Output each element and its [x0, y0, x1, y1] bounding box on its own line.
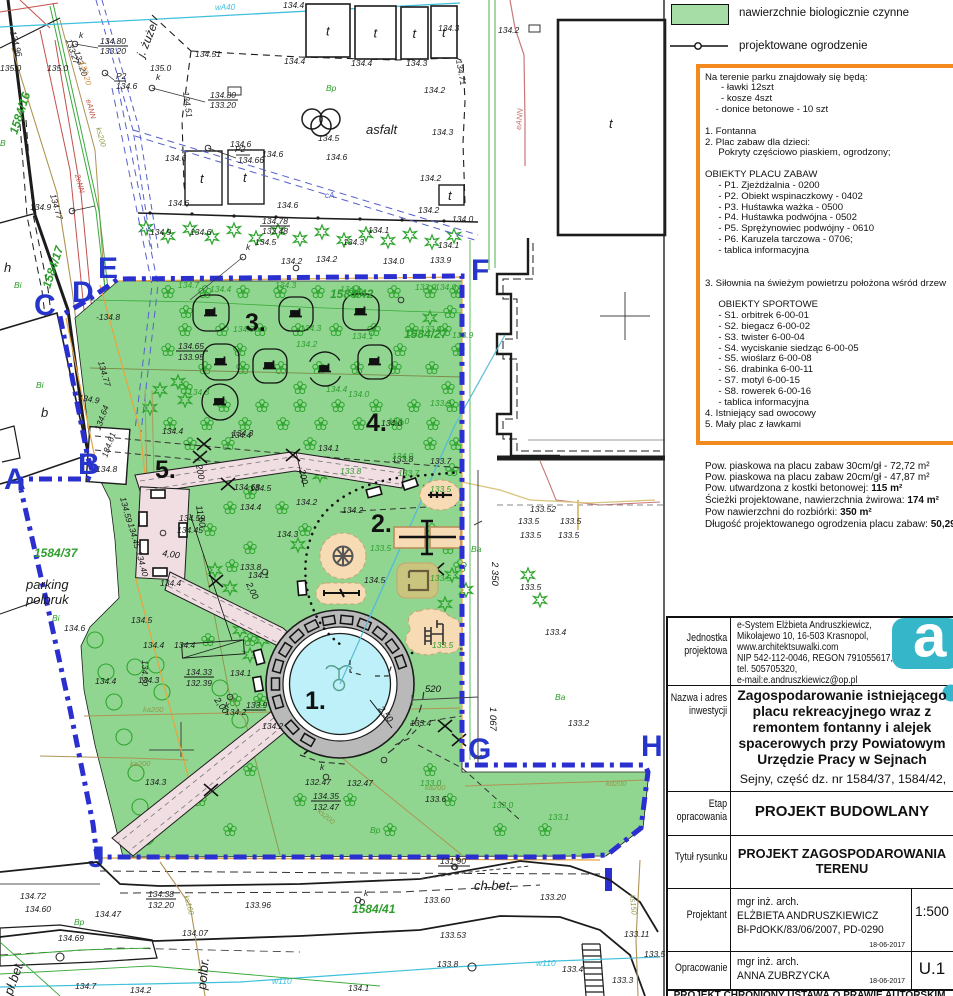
svg-text:134.1: 134.1: [348, 983, 370, 993]
svg-text:133.0: 133.0: [492, 800, 514, 810]
svg-text:5.: 5.: [155, 456, 176, 484]
svg-text:132.47: 132.47: [305, 777, 331, 787]
svg-text:134.2: 134.2: [316, 254, 338, 264]
svg-text:1 067: 1 067: [487, 707, 498, 731]
svg-text:134.38: 134.38: [148, 889, 174, 899]
svg-text:134.6: 134.6: [230, 139, 252, 149]
svg-text:134.3: 134.3: [432, 127, 454, 137]
svg-text:132.20: 132.20: [148, 900, 174, 910]
svg-text:133.9: 133.9: [430, 398, 452, 408]
svg-text:134.0: 134.0: [435, 282, 457, 292]
svg-text:ch.bet.: ch.bet.: [474, 878, 513, 893]
svg-text:133.0: 133.0: [420, 778, 442, 788]
svg-text:132.39: 132.39: [186, 678, 212, 688]
svg-text:133.9: 133.9: [430, 255, 452, 265]
svg-text:1584/27: 1584/27: [404, 327, 449, 341]
svg-text:E: E: [98, 252, 118, 285]
svg-text:ks150: ks150: [628, 894, 639, 916]
svg-text:133.96: 133.96: [245, 900, 271, 910]
svg-text:134.2: 134.2: [498, 25, 520, 35]
svg-text:132.47: 132.47: [347, 778, 373, 788]
svg-text:Ba: Ba: [555, 692, 566, 702]
svg-text:134.6: 134.6: [277, 200, 299, 210]
svg-text:134.33: 134.33: [186, 667, 212, 677]
svg-text:133.48: 133.48: [262, 226, 288, 236]
svg-text:1584/42: 1584/42: [330, 287, 374, 301]
svg-text:133.5: 133.5: [370, 543, 392, 553]
svg-text:134.4: 134.4: [240, 502, 262, 512]
svg-text:133.9: 133.9: [415, 282, 437, 292]
svg-text:133.5: 133.5: [430, 573, 452, 583]
svg-text:Bp: Bp: [326, 83, 337, 93]
svg-text:134.6: 134.6: [64, 623, 86, 633]
svg-text:cA: cA: [325, 191, 334, 200]
svg-text:J: J: [88, 841, 105, 874]
svg-text:polbr.: polbr.: [194, 957, 212, 991]
svg-text:133.5: 133.5: [558, 530, 580, 540]
svg-text:134.3: 134.3: [145, 777, 167, 787]
svg-text:134.3: 134.3: [277, 529, 299, 539]
svg-text:134.2: 134.2: [418, 205, 440, 215]
svg-text:134.7: 134.7: [75, 981, 97, 991]
svg-text:134.2: 134.2: [424, 85, 446, 95]
svg-text:133.9: 133.9: [452, 330, 474, 340]
svg-text:134.69: 134.69: [58, 933, 84, 943]
svg-text:134.3: 134.3: [275, 280, 297, 290]
svg-text:134.59: 134.59: [179, 513, 205, 523]
svg-text:B: B: [0, 138, 6, 148]
svg-text:134.2: 134.2: [262, 721, 284, 731]
svg-text:133.4: 133.4: [545, 627, 567, 637]
svg-text:133.5: 133.5: [432, 640, 454, 650]
svg-text:134.80: 134.80: [100, 36, 126, 46]
svg-text:134.4: 134.4: [95, 676, 117, 686]
svg-text:133.11: 133.11: [624, 929, 650, 939]
svg-text:134.72: 134.72: [20, 891, 46, 901]
svg-text:2.: 2.: [371, 510, 392, 538]
svg-text:134.78: 134.78: [262, 216, 288, 226]
svg-text:133.60: 133.60: [424, 895, 450, 905]
svg-text:A: A: [4, 463, 26, 496]
svg-text:134.6: 134.6: [165, 153, 187, 163]
svg-text:134.4: 134.4: [230, 430, 252, 440]
svg-text:520: 520: [425, 684, 442, 695]
svg-text:ka200: ka200: [130, 759, 151, 768]
svg-text:133.5: 133.5: [520, 530, 542, 540]
svg-text:134.6: 134.6: [190, 227, 212, 237]
svg-text:134.5: 134.5: [364, 575, 386, 585]
svg-text:134.1: 134.1: [368, 225, 390, 235]
svg-text:134.2: 134.2: [296, 339, 318, 349]
svg-text:C: C: [34, 289, 56, 322]
svg-text:133.95: 133.95: [178, 352, 204, 362]
svg-text:134.4: 134.4: [210, 284, 232, 294]
svg-text:ka200: ka200: [143, 705, 164, 714]
svg-text:134.9: 134.9: [150, 227, 172, 237]
svg-text:135.0: 135.0: [0, 63, 22, 73]
svg-text:134.4: 134.4: [326, 384, 348, 394]
svg-text:Bi: Bi: [14, 280, 23, 290]
svg-text:134.2: 134.2: [296, 497, 318, 507]
svg-text:133.5: 133.5: [520, 582, 542, 592]
svg-text:133.3: 133.3: [612, 975, 634, 985]
svg-text:134.0: 134.0: [348, 389, 370, 399]
svg-text:wA40: wA40: [215, 3, 236, 12]
svg-text:134.65: 134.65: [178, 341, 204, 351]
svg-text:133.8: 133.8: [340, 466, 362, 476]
svg-text:133.52: 133.52: [530, 504, 556, 514]
svg-text:134.3: 134.3: [343, 237, 365, 247]
svg-text:F: F: [471, 254, 489, 287]
svg-text:134.35: 134.35: [313, 791, 339, 801]
svg-text:134.3: 134.3: [233, 324, 255, 334]
svg-text:P2: P2: [116, 71, 127, 81]
svg-text:polbruk: polbruk: [25, 592, 70, 607]
svg-text:134.3: 134.3: [438, 23, 460, 33]
svg-text:134.6: 134.6: [116, 81, 138, 91]
svg-text:132.47: 132.47: [313, 802, 339, 812]
svg-text:134.0: 134.0: [388, 416, 410, 426]
svg-text:133.1: 133.1: [548, 812, 570, 822]
svg-text:kd200: kd200: [606, 779, 627, 788]
svg-text:134.4: 134.4: [174, 640, 196, 650]
svg-text:134.8: 134.8: [96, 464, 118, 474]
svg-text:134.6: 134.6: [326, 152, 348, 162]
svg-text:134.5: 134.5: [255, 237, 277, 247]
svg-text:134.2: 134.2: [420, 173, 442, 183]
svg-text:134.9: 134.9: [30, 202, 52, 212]
svg-text:134.2: 134.2: [130, 985, 152, 995]
svg-text:134.4: 134.4: [143, 640, 165, 650]
svg-text:134.2: 134.2: [281, 256, 303, 266]
svg-text:134.5: 134.5: [318, 133, 340, 143]
svg-text:133.6: 133.6: [425, 794, 447, 804]
svg-text:133.5: 133.5: [518, 516, 540, 526]
svg-text:h: h: [4, 260, 11, 275]
svg-text:133.5: 133.5: [644, 949, 666, 959]
svg-text:133.5: 133.5: [560, 516, 582, 526]
svg-text:134.6: 134.6: [262, 149, 284, 159]
svg-text:134.4: 134.4: [162, 426, 184, 436]
svg-text:134.1: 134.1: [352, 331, 374, 341]
svg-text:H: H: [641, 730, 663, 763]
svg-text:134.0: 134.0: [383, 256, 405, 266]
svg-text:-134.8: -134.8: [96, 312, 120, 322]
svg-text:134.51: 134.51: [195, 49, 221, 59]
svg-text:133.53: 133.53: [440, 930, 466, 940]
svg-text:parking: parking: [25, 577, 69, 592]
svg-text:134.4: 134.4: [284, 56, 306, 66]
svg-text:133.9: 133.9: [246, 700, 268, 710]
svg-text:Ba: Ba: [471, 544, 482, 554]
svg-text:133.4: 133.4: [410, 718, 432, 728]
svg-text:1584/37: 1584/37: [34, 546, 79, 560]
svg-text:133.5: 133.5: [430, 484, 452, 494]
svg-text:134.0: 134.0: [392, 451, 414, 461]
svg-text:134.4: 134.4: [160, 578, 182, 588]
svg-text:134.4: 134.4: [283, 0, 305, 10]
svg-text:135.0: 135.0: [150, 63, 172, 73]
svg-text:a: a: [913, 618, 947, 669]
svg-text:D: D: [72, 276, 94, 309]
svg-text:134.50: 134.50: [140, 660, 150, 686]
svg-text:133.2: 133.2: [568, 718, 590, 728]
svg-text:133.8: 133.8: [240, 562, 262, 572]
svg-text:134.5: 134.5: [131, 615, 153, 625]
svg-text:133.20: 133.20: [540, 892, 566, 902]
svg-text:w110: w110: [536, 958, 556, 968]
svg-text:134.66: 134.66: [238, 155, 264, 165]
svg-text:134.3: 134.3: [300, 323, 322, 333]
svg-text:134.1: 134.1: [438, 240, 460, 250]
svg-text:134.0: 134.0: [452, 214, 474, 224]
svg-text:134.68: 134.68: [234, 482, 260, 492]
svg-text:134.45: 134.45: [177, 525, 203, 535]
svg-text:133.20: 133.20: [100, 46, 126, 56]
svg-text:b: b: [41, 405, 48, 420]
svg-text:eANN: eANN: [514, 108, 525, 130]
svg-text:134.1: 134.1: [230, 668, 252, 678]
svg-text:134.4: 134.4: [351, 58, 373, 68]
svg-text:134.07: 134.07: [182, 928, 208, 938]
svg-text:1.: 1.: [305, 687, 326, 715]
svg-text:133.4: 133.4: [562, 964, 584, 974]
svg-text:2 350: 2 350: [489, 561, 500, 586]
svg-text:Bp: Bp: [370, 825, 381, 835]
svg-text:134.3: 134.3: [188, 387, 210, 397]
svg-text:G: G: [468, 733, 491, 766]
svg-text:asfalt: asfalt: [366, 122, 398, 137]
svg-text:134.60: 134.60: [25, 904, 51, 914]
svg-text:134.2: 134.2: [342, 505, 364, 515]
svg-text:133.7: 133.7: [430, 456, 452, 466]
svg-text:134.7: 134.7: [178, 280, 200, 290]
svg-text:134.1: 134.1: [318, 443, 340, 453]
svg-text:133.8: 133.8: [437, 959, 459, 969]
svg-text:Bi: Bi: [36, 380, 45, 390]
svg-text:134.6: 134.6: [168, 198, 190, 208]
svg-text:Bp: Bp: [74, 917, 85, 927]
svg-text:135.0: 135.0: [47, 63, 69, 73]
svg-text:Bi: Bi: [52, 613, 61, 623]
svg-text:133.20: 133.20: [210, 100, 236, 110]
svg-text:134.3: 134.3: [406, 58, 428, 68]
svg-text:133.7: 133.7: [398, 468, 420, 478]
svg-text:1584/41: 1584/41: [352, 902, 396, 916]
svg-text:134.47: 134.47: [95, 909, 121, 919]
